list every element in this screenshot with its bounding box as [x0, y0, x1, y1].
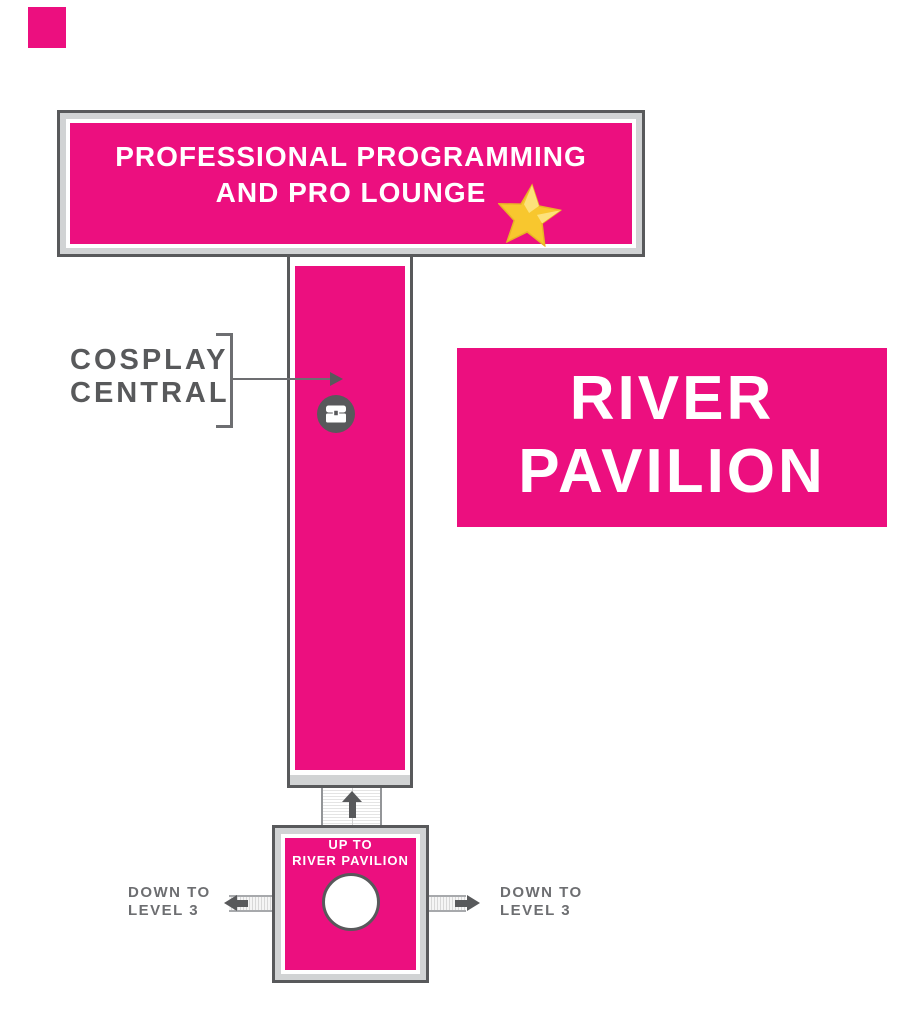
- corridor: [287, 257, 413, 788]
- legend-square: [28, 7, 66, 48]
- river-pavilion-title: RIVER PAVILION: [457, 362, 887, 508]
- down-right-line2: LEVEL 3: [500, 902, 583, 920]
- cosplay-bracket-line: [230, 333, 233, 428]
- down-right-line1: DOWN TO: [500, 884, 583, 902]
- pro-programming-label-line1: PROFESSIONAL PROGRAMMING: [60, 139, 642, 175]
- cosplay-central-line2: CENTRAL: [70, 377, 230, 410]
- down-to-level3-left-label: DOWN TO LEVEL 3: [128, 884, 211, 920]
- right-arrow-head: [467, 895, 480, 911]
- pointer-arrow-line: [233, 378, 332, 380]
- chest-icon: [317, 395, 355, 433]
- stairs-room: UP TO RIVER PAVILION: [272, 825, 429, 983]
- down-to-level3-right-label: DOWN TO LEVEL 3: [500, 884, 583, 920]
- elevator-circle: [322, 873, 380, 931]
- cosplay-bracket-top-tick: [216, 333, 231, 336]
- river-pavilion-title-line2: PAVILION: [457, 435, 887, 508]
- corridor-fill: [295, 266, 405, 770]
- right-arrow-icon: [454, 895, 480, 912]
- cosplay-central-label: COSPLAY CENTRAL: [70, 344, 230, 410]
- down-left-line2: LEVEL 3: [128, 902, 211, 920]
- up-arrow-stem: [349, 801, 356, 818]
- floor-map: PROFESSIONAL PROGRAMMING AND PRO LOUNGE …: [0, 0, 922, 1017]
- up-to-line2: RIVER PAVILION: [275, 853, 426, 869]
- star-icon: [494, 180, 564, 248]
- corridor-bottom-frame: [290, 773, 410, 785]
- cosplay-central-line1: COSPLAY: [70, 344, 230, 377]
- left-arrow-stem: [236, 900, 248, 907]
- right-arrow-stem: [455, 900, 467, 907]
- cosplay-bracket-bottom-tick: [216, 425, 231, 428]
- river-pavilion-block: RIVER PAVILION: [457, 348, 887, 527]
- escalator-strip: [321, 788, 382, 826]
- left-arrow-icon: [224, 895, 250, 912]
- pointer-arrow-icon: [330, 372, 343, 386]
- river-pavilion-title-line1: RIVER: [457, 362, 887, 435]
- up-to-river-pavilion-label: UP TO RIVER PAVILION: [275, 837, 426, 870]
- down-left-line1: DOWN TO: [128, 884, 211, 902]
- up-to-line1: UP TO: [275, 837, 426, 853]
